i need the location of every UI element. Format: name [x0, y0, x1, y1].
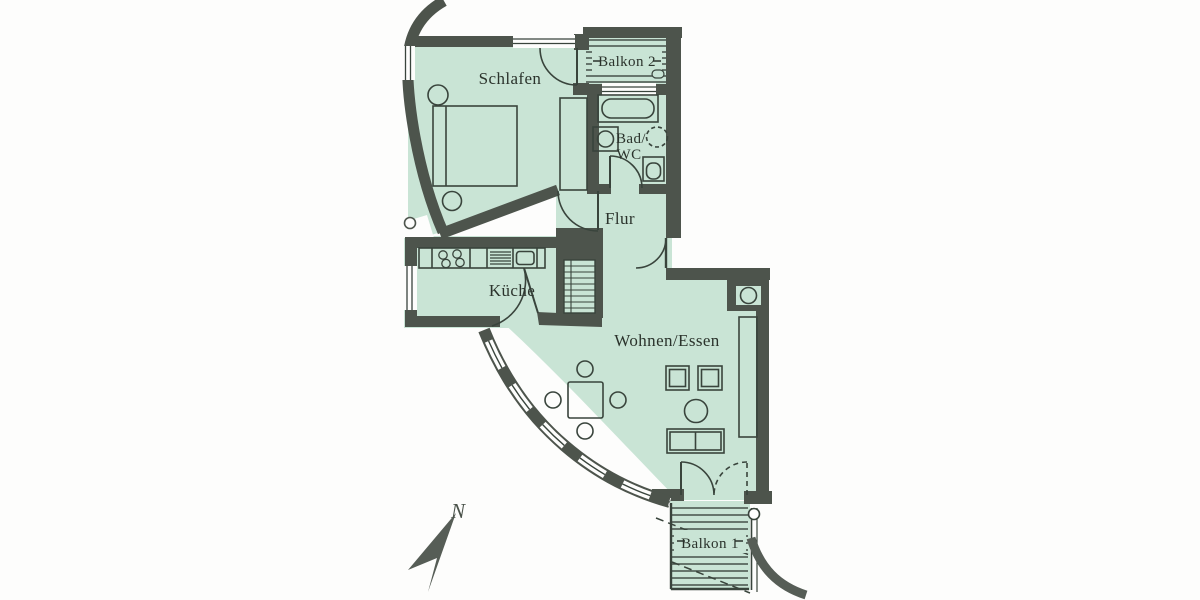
room-label-living: Wohnen/Essen	[614, 331, 720, 350]
hall-closet-shelves	[564, 260, 595, 313]
north-label: N	[450, 499, 466, 523]
floorplan-drawing: Schlafen Balkon 2 Bad/ WC Flur Küche Woh…	[0, 0, 1200, 600]
room-label-bathroom-line1: Bad/	[616, 131, 646, 147]
dining-chair	[577, 423, 593, 439]
room-label-kitchen: Küche	[489, 281, 535, 300]
room-label-bedroom: Schlafen	[479, 69, 542, 88]
room-label-bathroom-line2: WC	[617, 147, 642, 163]
column-niche	[736, 286, 761, 305]
compass: N	[408, 499, 466, 592]
window-bedroom-left	[401, 46, 415, 80]
exterior-fixture-circle	[405, 218, 416, 229]
north-arrow	[408, 513, 456, 592]
room-label-balcony1: Balkon 1	[681, 536, 739, 552]
room-label-hallway: Flur	[605, 209, 635, 228]
wall-tail-southeast	[751, 538, 806, 595]
floorplan-page: Schlafen Balkon 2 Bad/ WC Flur Küche Woh…	[0, 0, 1200, 600]
window-bedroom-top	[513, 35, 575, 48]
window-bathroom	[602, 83, 656, 96]
window-kitchen-left	[403, 266, 417, 310]
room-label-balcony2: Balkon 2	[598, 54, 656, 70]
dining-chair	[545, 392, 561, 408]
railing-post	[749, 509, 760, 520]
balcony2-drain	[652, 70, 664, 78]
